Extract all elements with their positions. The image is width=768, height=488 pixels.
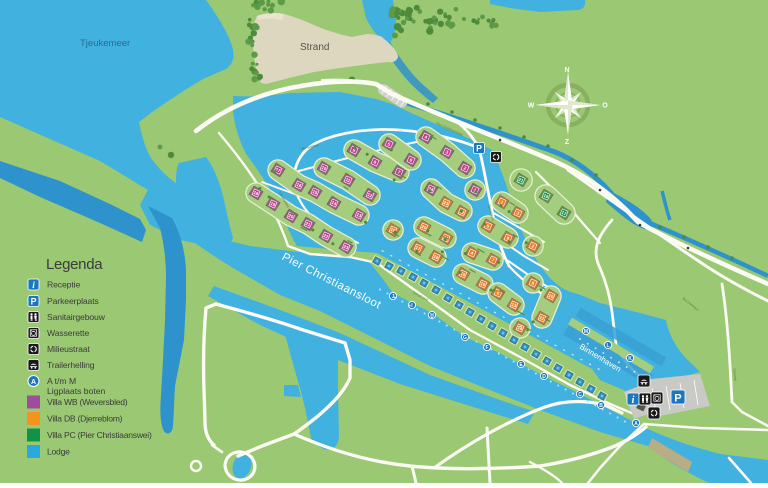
svg-text:B: B (599, 403, 603, 409)
svg-text:Z: Z (565, 139, 570, 146)
svg-text:Lodge: Lodge (47, 447, 70, 457)
svg-text:Villa WB (Weversbled): Villa WB (Weversbled) (47, 397, 128, 407)
svg-text:Sanitairgebouw: Sanitairgebouw (47, 312, 106, 322)
svg-text:Receptie: Receptie (47, 280, 80, 290)
svg-text:Strand: Strand (300, 42, 329, 53)
svg-text:O: O (602, 103, 608, 110)
svg-text:Wasserette: Wasserette (47, 328, 89, 338)
svg-text:i: i (632, 395, 635, 406)
svg-text:Tjeukemeer: Tjeukemeer (80, 38, 130, 49)
svg-text:Legenda: Legenda (46, 256, 103, 273)
svg-text:P: P (476, 144, 482, 154)
svg-text:Trailerhelling: Trailerhelling (47, 360, 95, 370)
svg-text:N: N (564, 67, 569, 74)
svg-text:F: F (485, 345, 488, 351)
svg-text:A: A (31, 379, 36, 386)
svg-text:P: P (674, 392, 682, 404)
svg-text:Villa DB (Djerreblom): Villa DB (Djerreblom) (47, 414, 123, 424)
svg-text:A t/m M: A t/m M (47, 376, 76, 386)
svg-text:Milieustraat: Milieustraat (47, 344, 90, 354)
svg-text:W: W (528, 103, 535, 110)
svg-text:K: K (628, 356, 632, 362)
svg-text:Ligplaats boten: Ligplaats boten (47, 386, 106, 396)
svg-text:P: P (31, 297, 37, 307)
svg-text:G: G (463, 335, 467, 341)
svg-text:i: i (32, 281, 35, 291)
svg-text:Villa PC (Pier Christiaanswei): Villa PC (Pier Christiaanswei) (47, 430, 152, 440)
svg-text:Parkeerplaats: Parkeerplaats (47, 296, 99, 306)
svg-text:L: L (606, 343, 609, 349)
svg-text:M: M (584, 329, 588, 335)
svg-text:A: A (634, 421, 638, 427)
